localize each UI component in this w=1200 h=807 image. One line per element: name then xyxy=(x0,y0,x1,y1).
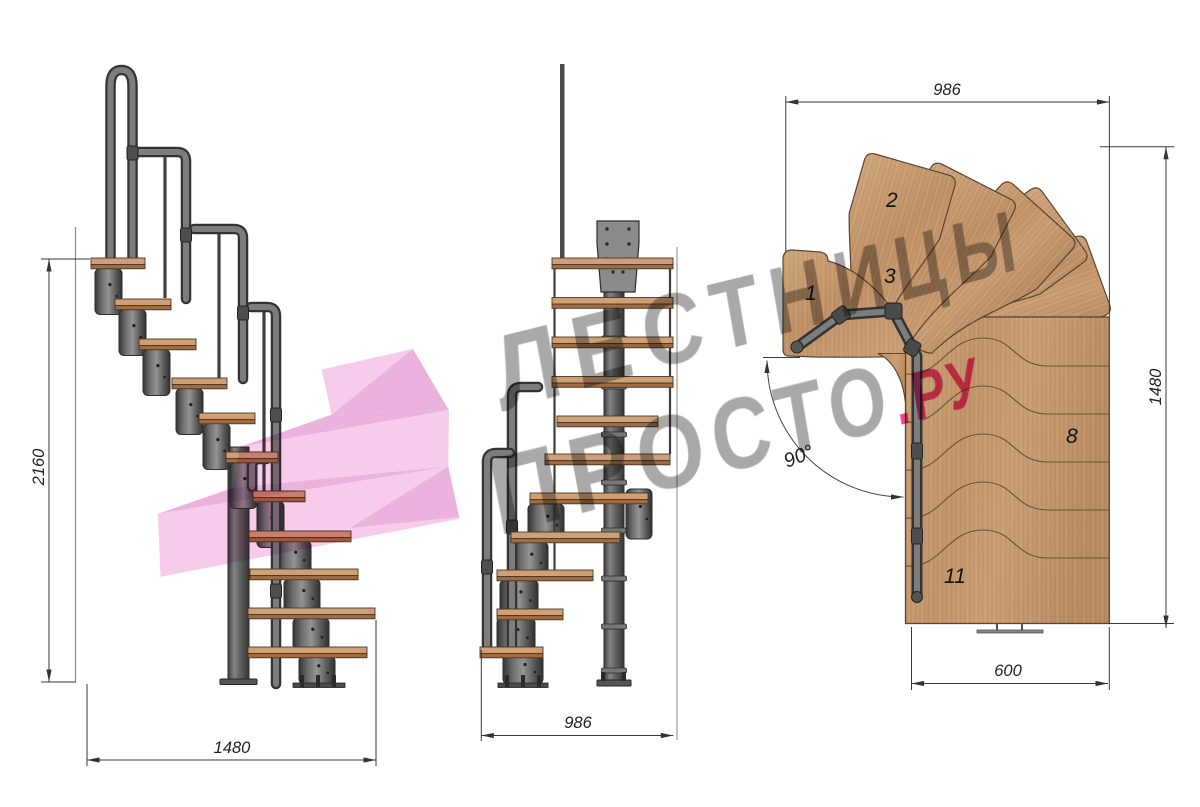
svg-text:8: 8 xyxy=(1066,425,1078,448)
svg-text:986: 986 xyxy=(933,81,961,99)
svg-text:986: 986 xyxy=(564,714,592,732)
svg-text:11: 11 xyxy=(944,565,966,588)
svg-text:1480: 1480 xyxy=(214,739,252,757)
svg-text:1480: 1480 xyxy=(1147,368,1165,406)
svg-text:2: 2 xyxy=(885,189,898,212)
svg-text:600: 600 xyxy=(994,662,1022,680)
svg-text:2160: 2160 xyxy=(30,448,48,487)
